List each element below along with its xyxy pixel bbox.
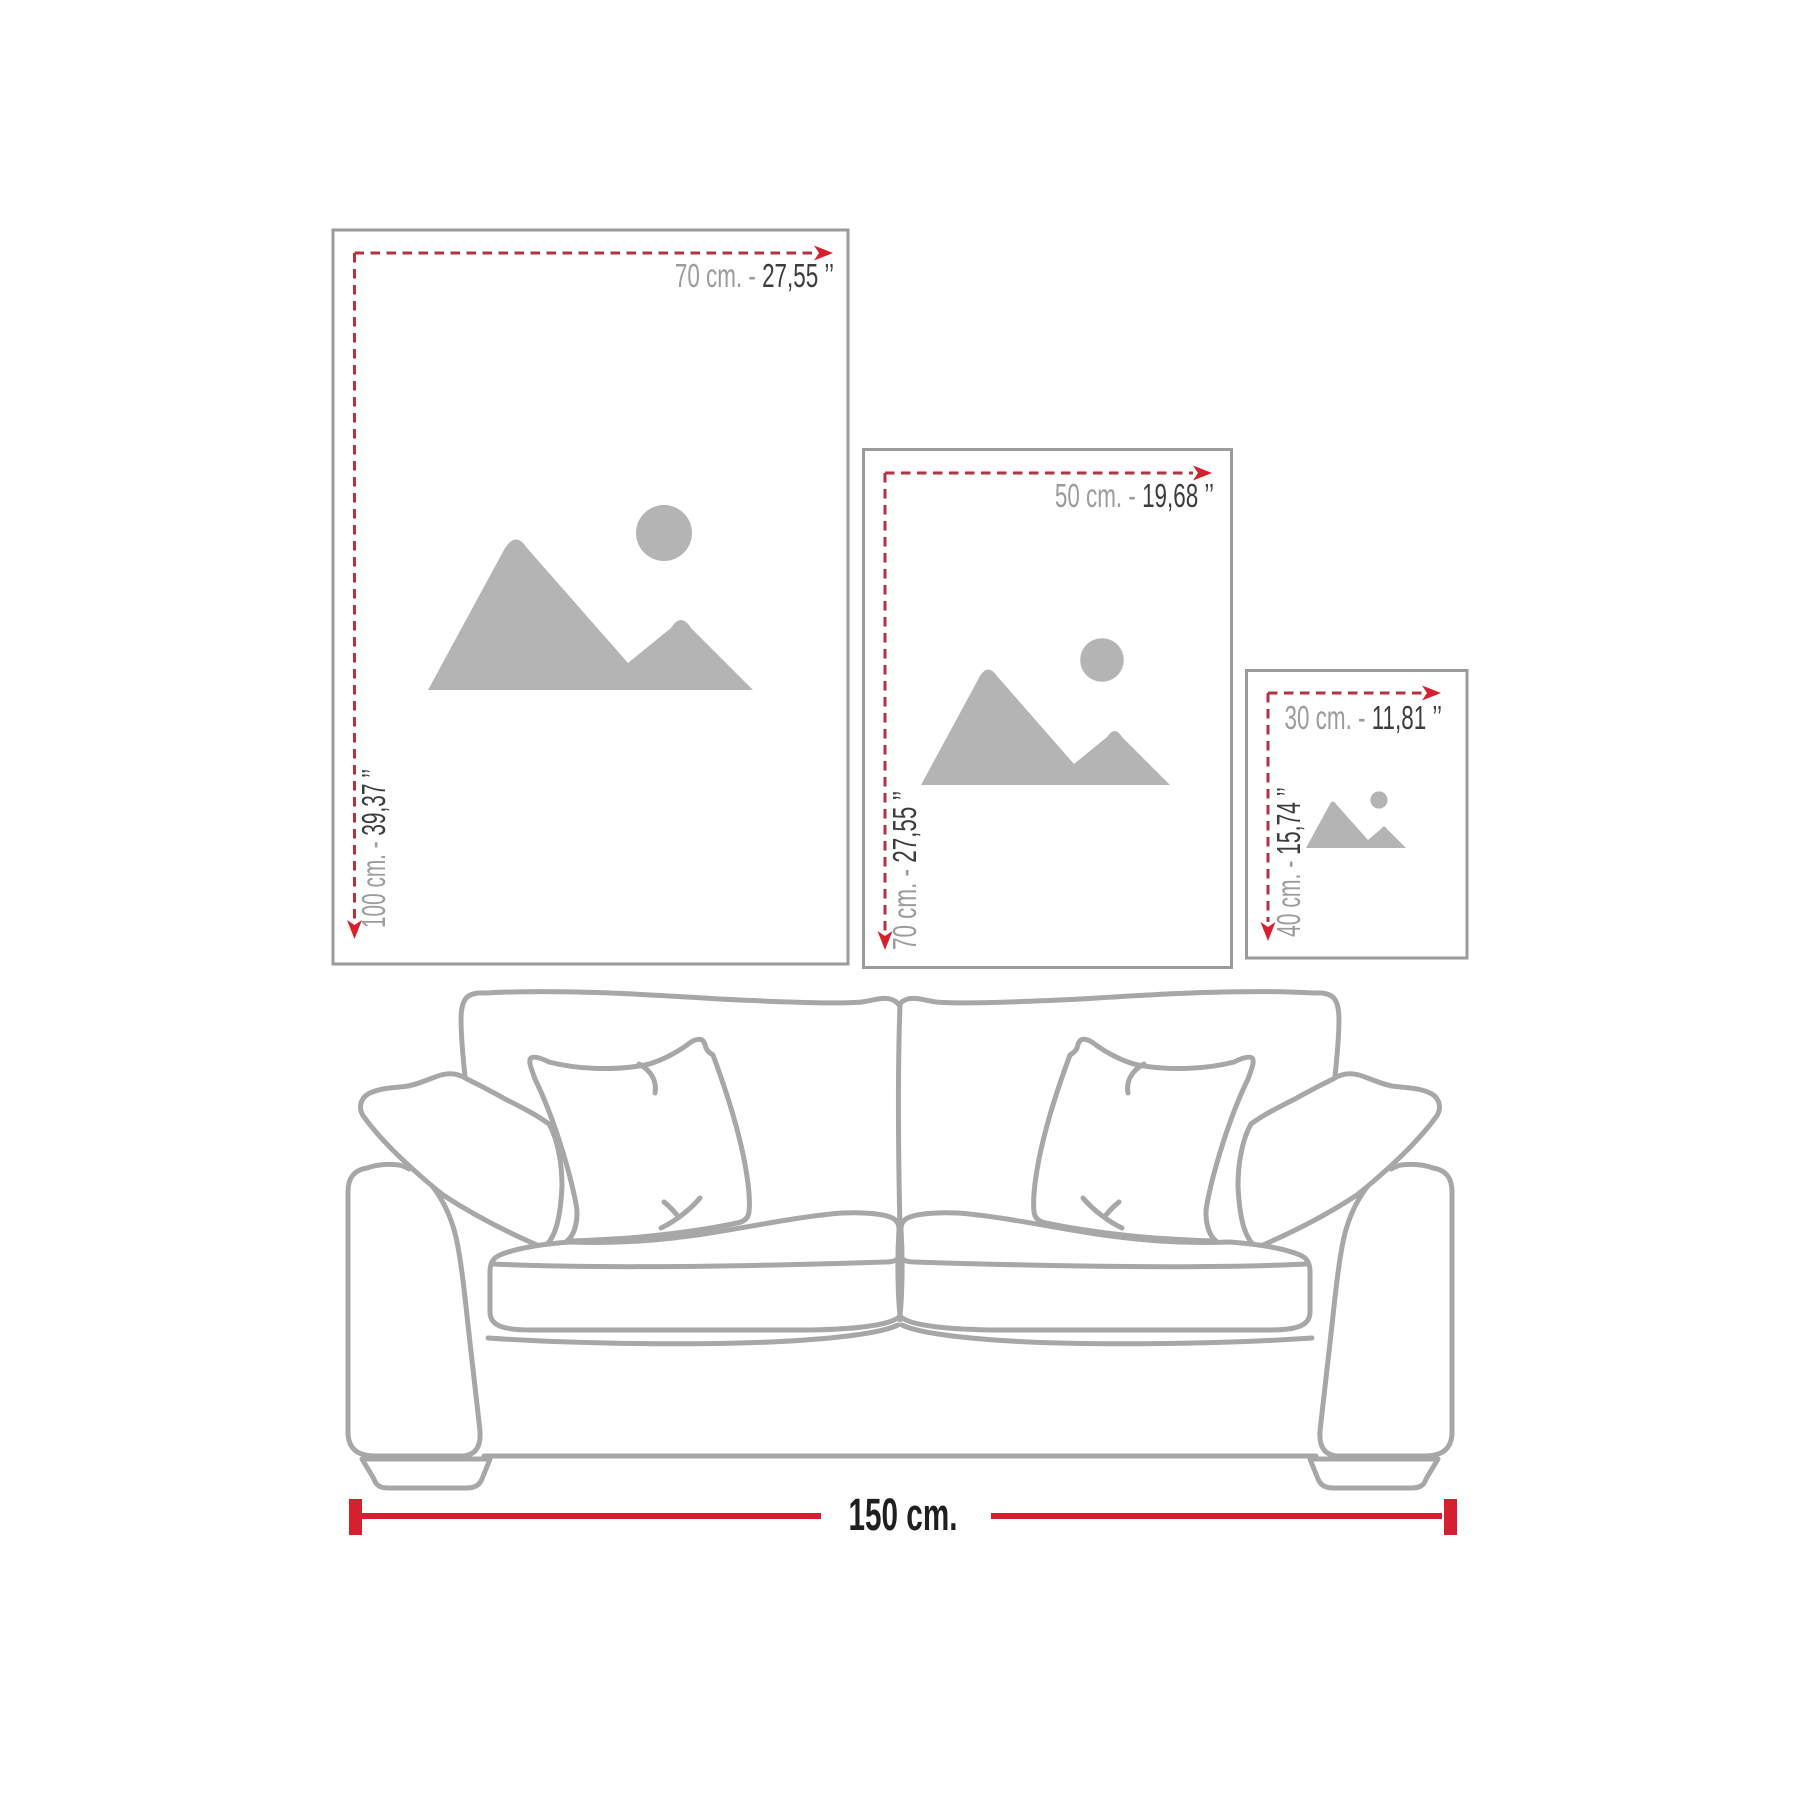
svg-text:100 cm. - 39,37 ’’: 100 cm. - 39,37 ’’ [355,769,392,928]
svg-text:70 cm. - 27,55 ’’: 70 cm. - 27,55 ’’ [675,257,834,294]
svg-text:50 cm. - 19,68 ’’: 50 cm. - 19,68 ’’ [1055,477,1214,514]
svg-text:150 cm.: 150 cm. [849,1490,958,1541]
svg-text:70 cm. - 27,55 ’’: 70 cm. - 27,55 ’’ [886,791,923,950]
svg-text:30 cm. - 11,81 ’’: 30 cm. - 11,81 ’’ [1285,699,1442,736]
svg-text:40 cm. - 15,74 ’’: 40 cm. - 15,74 ’’ [1270,787,1307,937]
